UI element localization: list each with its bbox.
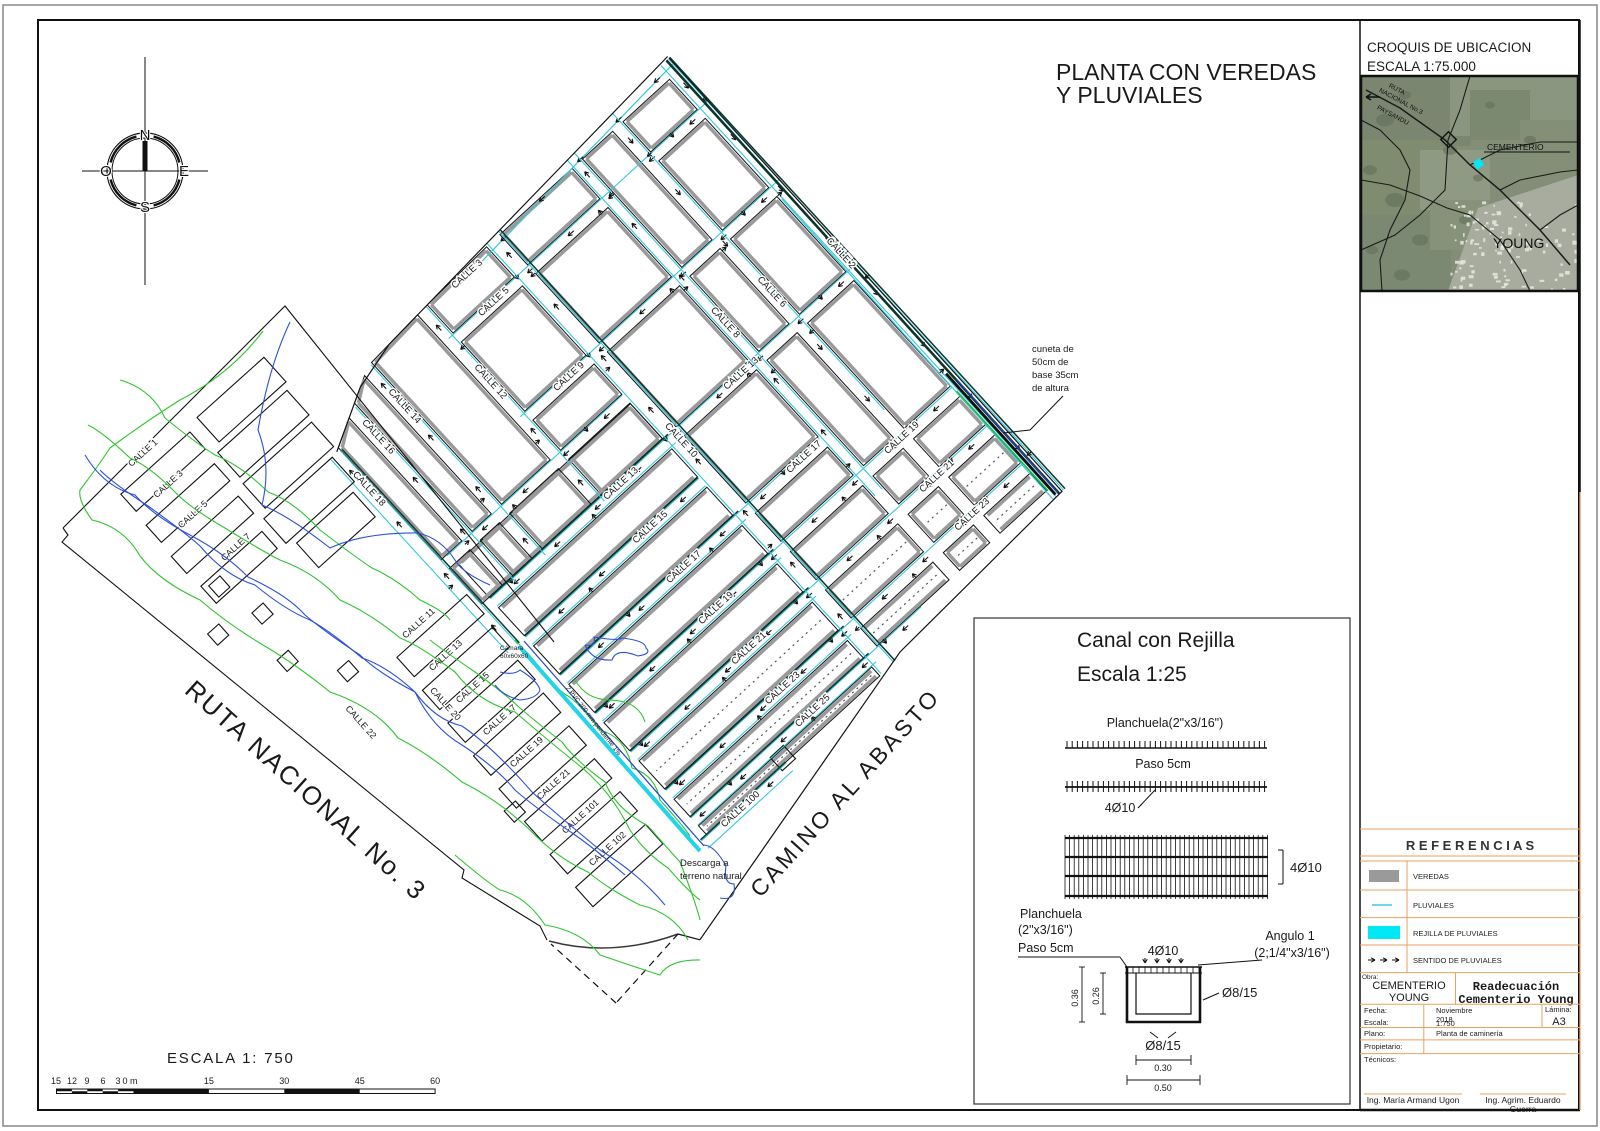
svg-text:Fecha:: Fecha:	[1364, 1006, 1387, 1015]
svg-text:Técnicos:: Técnicos:	[1364, 1055, 1396, 1064]
svg-text:30: 30	[279, 1076, 289, 1086]
svg-text:CEMENTERIO: CEMENTERIO	[1372, 980, 1446, 992]
svg-text:Paso 5cm: Paso 5cm	[1018, 941, 1074, 955]
svg-text:Readecuación: Readecuación	[1473, 980, 1559, 994]
svg-text:ESCALA 1: 750: ESCALA 1: 750	[167, 1050, 295, 1067]
svg-text:E: E	[179, 163, 189, 180]
svg-text:6: 6	[100, 1076, 105, 1086]
svg-text:4Ø10: 4Ø10	[1290, 860, 1322, 875]
svg-text:Descarga a: Descarga a	[680, 858, 729, 869]
svg-text:YOUNG: YOUNG	[1389, 992, 1429, 1004]
svg-text:9: 9	[84, 1076, 89, 1086]
svg-text:N: N	[140, 127, 151, 144]
svg-text:S: S	[140, 199, 150, 216]
svg-text:12: 12	[67, 1076, 77, 1086]
svg-text:Y PLUVIALES: Y PLUVIALES	[1056, 82, 1203, 108]
svg-text:0 m: 0 m	[122, 1076, 137, 1086]
svg-text:60: 60	[430, 1076, 440, 1086]
svg-text:Planchuela(2"x3/16"): Planchuela(2"x3/16")	[1107, 716, 1224, 730]
svg-text:Paso 5cm: Paso 5cm	[1135, 757, 1191, 771]
svg-text:(2"x3/16"): (2"x3/16")	[1018, 923, 1073, 937]
svg-text:0.36: 0.36	[1070, 989, 1080, 1007]
svg-text:cuneta de: cuneta de	[1032, 344, 1074, 355]
svg-text:CROQUIS DE UBICACION: CROQUIS DE UBICACION	[1367, 40, 1531, 55]
svg-text:50cm de: 50cm de	[1032, 357, 1068, 368]
svg-text:Canal con Rejilla: Canal con Rejilla	[1077, 629, 1235, 652]
svg-text:15: 15	[204, 1076, 214, 1086]
svg-text:(2;1/4"x3/16"): (2;1/4"x3/16")	[1254, 946, 1330, 960]
svg-text:O: O	[100, 163, 112, 180]
svg-text:ESCALA 1:75.000: ESCALA 1:75.000	[1367, 59, 1476, 74]
svg-text:4Ø10: 4Ø10	[1148, 944, 1179, 958]
svg-text:0.50: 0.50	[1154, 1083, 1172, 1093]
svg-text:Propietario:: Propietario:	[1364, 1042, 1402, 1051]
svg-text:45: 45	[355, 1076, 365, 1086]
svg-text:PLUVIALES: PLUVIALES	[1413, 901, 1454, 910]
svg-text:0.26: 0.26	[1091, 987, 1101, 1005]
svg-text:terreno natural: terreno natural	[680, 871, 742, 882]
svg-text:Lámina:: Lámina:	[1545, 1005, 1572, 1014]
svg-text:Noviembre: Noviembre	[1436, 1006, 1472, 1015]
svg-text:3: 3	[115, 1076, 120, 1086]
svg-text:4Ø10: 4Ø10	[1105, 801, 1136, 815]
svg-text:de altura: de altura	[1032, 383, 1070, 394]
svg-text:0.30: 0.30	[1154, 1063, 1172, 1073]
svg-text:YOUNG: YOUNG	[1493, 235, 1544, 251]
svg-text:A3: A3	[1552, 1016, 1565, 1028]
svg-text:Plano:: Plano:	[1364, 1029, 1385, 1038]
svg-text:Escala:: Escala:	[1364, 1018, 1389, 1027]
svg-text:Planta de caminería: Planta de caminería	[1436, 1029, 1504, 1038]
svg-text:Planchuela: Planchuela	[1020, 907, 1082, 921]
svg-text:SENTIDO DE PLUVIALES: SENTIDO DE PLUVIALES	[1413, 956, 1502, 965]
svg-text:1:750: 1:750	[1436, 1019, 1455, 1028]
svg-text:CEMENTERIO: CEMENTERIO	[1487, 142, 1544, 152]
svg-text:Ø8/15: Ø8/15	[1222, 985, 1257, 1000]
svg-text:R E F E R E N C I A S: R E F E R E N C I A S	[1406, 838, 1535, 853]
svg-text:VEREDAS: VEREDAS	[1413, 872, 1449, 881]
svg-text:Ing. María Armand Ugon: Ing. María Armand Ugon	[1367, 1095, 1460, 1105]
svg-text:base 35cm: base 35cm	[1032, 370, 1079, 381]
svg-text:15: 15	[51, 1076, 61, 1086]
svg-text:REJILLA DE PLUVIALES: REJILLA DE PLUVIALES	[1413, 929, 1498, 938]
svg-text:Escala 1:25: Escala 1:25	[1077, 663, 1187, 686]
svg-text:Ø8/15: Ø8/15	[1145, 1038, 1180, 1053]
svg-text:60x60x60: 60x60x60	[500, 653, 529, 660]
svg-text:Angulo 1: Angulo 1	[1265, 929, 1314, 943]
svg-text:Cámara: Cámara	[500, 645, 524, 652]
